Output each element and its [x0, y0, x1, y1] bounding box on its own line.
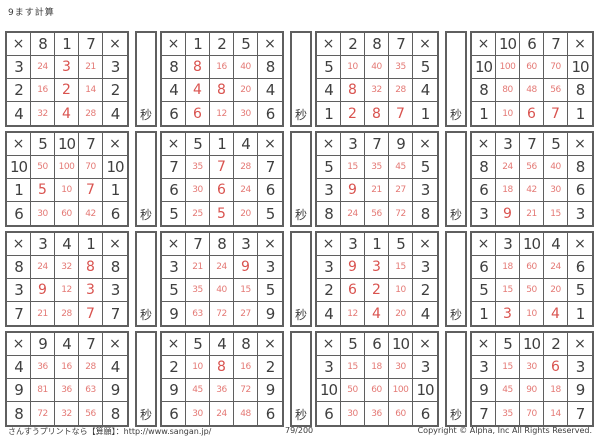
- right-factor-cell: 3: [258, 256, 282, 279]
- timer-box: 秒: [135, 31, 157, 127]
- left-factor-cell: 2: [7, 79, 31, 102]
- right-factor-cell: 3: [568, 356, 592, 379]
- answer-cell: 6: [186, 102, 210, 125]
- top-factor-cell: 10: [520, 233, 544, 256]
- answer-cell: 40: [210, 279, 234, 302]
- right-factor-cell: 2: [413, 279, 437, 302]
- right-factor-cell: 10: [568, 56, 592, 79]
- footer-site-link: さんすうプリントなら【算願】：http://www.sangan.jp/: [8, 426, 211, 437]
- answer-cell: 20: [234, 79, 258, 102]
- calc-table: ×125×88164084482046612306: [160, 31, 284, 127]
- answer-cell: 6: [341, 279, 365, 302]
- answer-cell: 27: [389, 179, 413, 202]
- left-factor-cell: 6: [7, 202, 31, 225]
- answer-cell: 6: [520, 102, 544, 125]
- calc-unit: ×341×82432883912337212877秒: [5, 231, 157, 327]
- left-factor-cell: 9: [162, 302, 186, 325]
- right-factor-cell: 9: [258, 302, 282, 325]
- seconds-label: 秒: [450, 206, 462, 225]
- left-factor-cell: 5: [162, 279, 186, 302]
- answer-cell: 35: [496, 402, 520, 425]
- top-factor-cell: 5: [186, 133, 210, 156]
- multiply-icon: ×: [317, 33, 341, 56]
- top-factor-cell: 7: [79, 333, 103, 356]
- answer-cell: 7: [210, 156, 234, 179]
- right-factor-cell: 6: [258, 402, 282, 425]
- top-factor-cell: 9: [31, 333, 55, 356]
- timer-box: 秒: [135, 231, 157, 327]
- right-factor-cell: 8: [103, 402, 127, 425]
- left-factor-cell: 5: [162, 202, 186, 225]
- top-factor-cell: 2: [544, 333, 568, 356]
- answer-cell: 42: [520, 179, 544, 202]
- answer-cell: 63: [79, 379, 103, 402]
- answer-cell: 36: [210, 379, 234, 402]
- top-factor-cell: 1: [55, 33, 79, 56]
- right-factor-cell: 4: [103, 356, 127, 379]
- left-factor-cell: 3: [317, 256, 341, 279]
- multiply-icon: ×: [413, 233, 437, 256]
- top-factor-cell: 7: [544, 33, 568, 56]
- right-factor-cell: 6: [258, 102, 282, 125]
- footer-page-number: 79/200: [285, 426, 313, 435]
- answer-cell: 72: [389, 202, 413, 225]
- answer-cell: 56: [520, 156, 544, 179]
- right-factor-cell: 9: [258, 379, 282, 402]
- top-factor-cell: 7: [79, 33, 103, 56]
- answer-cell: 45: [496, 379, 520, 402]
- right-factor-cell: 6: [413, 402, 437, 425]
- answer-cell: 10: [520, 302, 544, 325]
- multiply-icon: ×: [103, 133, 127, 156]
- top-factor-cell: 5: [389, 233, 413, 256]
- multiply-icon: ×: [258, 33, 282, 56]
- answer-cell: 5: [31, 179, 55, 202]
- answer-cell: 90: [520, 379, 544, 402]
- left-factor-cell: 4: [317, 302, 341, 325]
- left-factor-cell: 8: [162, 56, 186, 79]
- right-factor-cell: 10: [413, 379, 437, 402]
- multiply-icon: ×: [568, 233, 592, 256]
- answer-cell: 60: [365, 379, 389, 402]
- right-factor-cell: 6: [568, 179, 592, 202]
- right-factor-cell: 7: [103, 302, 127, 325]
- answer-cell: 3: [55, 56, 79, 79]
- seconds-label: 秒: [450, 106, 462, 125]
- top-factor-cell: 5: [496, 333, 520, 356]
- answer-cell: 21: [186, 256, 210, 279]
- answer-cell: 18: [496, 179, 520, 202]
- answer-cell: 63: [186, 302, 210, 325]
- right-factor-cell: 3: [413, 356, 437, 379]
- calc-table: ×315×3931532621024124204: [315, 231, 439, 327]
- answer-cell: 20: [544, 279, 568, 302]
- left-factor-cell: 3: [7, 279, 31, 302]
- answer-cell: 36: [31, 356, 55, 379]
- answer-cell: 10: [496, 102, 520, 125]
- answer-cell: 24: [234, 179, 258, 202]
- answer-cell: 15: [341, 356, 365, 379]
- left-factor-cell: 10: [7, 156, 31, 179]
- calc-unit: ×783×32124935354015596372279秒: [160, 231, 312, 327]
- answer-cell: 10: [186, 356, 210, 379]
- top-factor-cell: 7: [389, 33, 413, 56]
- top-factor-cell: 8: [365, 33, 389, 56]
- answer-cell: 24: [31, 256, 55, 279]
- seconds-label: 秒: [140, 406, 152, 425]
- right-factor-cell: 8: [568, 156, 592, 179]
- top-factor-cell: 4: [544, 233, 568, 256]
- answer-cell: 24: [544, 256, 568, 279]
- calc-table: ×5107×1050100701015107163060426: [5, 131, 129, 227]
- answer-cell: 60: [389, 402, 413, 425]
- answer-cell: 9: [496, 202, 520, 225]
- right-factor-cell: 8: [258, 56, 282, 79]
- calc-unit: ×817×324321321621424324284秒: [5, 31, 157, 127]
- multiply-icon: ×: [413, 133, 437, 156]
- multiply-icon: ×: [317, 333, 341, 356]
- worksheet-grid-area: ×817×324321321621424324284秒×125×88164084…: [5, 31, 600, 427]
- left-factor-cell: 1: [7, 179, 31, 202]
- top-factor-cell: 5: [544, 133, 568, 156]
- calc-unit: ×379×51535455392127382456728秒: [315, 131, 467, 227]
- top-factor-cell: 7: [365, 133, 389, 156]
- calc-unit: ×548×21081629453672963024486秒: [160, 331, 312, 427]
- top-factor-cell: 5: [341, 333, 365, 356]
- multiply-icon: ×: [472, 133, 496, 156]
- top-factor-cell: 2: [341, 33, 365, 56]
- right-factor-cell: 1: [568, 302, 592, 325]
- answer-cell: 50: [341, 379, 365, 402]
- answer-cell: 30: [520, 356, 544, 379]
- answer-cell: 100: [496, 56, 520, 79]
- answer-cell: 8: [79, 256, 103, 279]
- calc-table: ×5610×315183031050601001063036606: [315, 331, 439, 427]
- answer-cell: 3: [365, 256, 389, 279]
- answer-cell: 2: [365, 279, 389, 302]
- answer-cell: 7: [389, 102, 413, 125]
- left-factor-cell: 5: [472, 279, 496, 302]
- multiply-icon: ×: [317, 233, 341, 256]
- answer-cell: 6: [544, 356, 568, 379]
- answer-cell: 3: [79, 279, 103, 302]
- left-factor-cell: 7: [7, 302, 31, 325]
- answer-cell: 60: [520, 256, 544, 279]
- multiply-icon: ×: [472, 33, 496, 56]
- calc-table: ×3104×6186024651550205131041: [470, 231, 594, 327]
- top-factor-cell: 10: [389, 333, 413, 356]
- top-factor-cell: 8: [31, 33, 55, 56]
- seconds-label: 秒: [295, 106, 307, 125]
- top-factor-cell: 1: [79, 233, 103, 256]
- answer-cell: 5: [210, 202, 234, 225]
- calc-unit: ×514×735728763062465255205秒: [160, 131, 312, 227]
- calc-table: ×514×735728763062465255205: [160, 131, 284, 227]
- answer-cell: 15: [389, 256, 413, 279]
- multiply-icon: ×: [162, 233, 186, 256]
- right-factor-cell: 1: [103, 179, 127, 202]
- answer-cell: 16: [31, 79, 55, 102]
- answer-cell: 8: [210, 356, 234, 379]
- right-factor-cell: 6: [258, 179, 282, 202]
- multiply-icon: ×: [472, 333, 496, 356]
- left-factor-cell: 3: [7, 56, 31, 79]
- answer-cell: 45: [186, 379, 210, 402]
- multiply-icon: ×: [103, 333, 127, 356]
- answer-cell: 72: [31, 402, 55, 425]
- left-factor-cell: 9: [162, 379, 186, 402]
- answer-cell: 70: [544, 56, 568, 79]
- answer-cell: 100: [55, 156, 79, 179]
- timer-box: 秒: [135, 131, 157, 227]
- answer-cell: 4: [365, 302, 389, 325]
- seconds-label: 秒: [295, 406, 307, 425]
- multiply-icon: ×: [7, 33, 31, 56]
- multiply-icon: ×: [162, 133, 186, 156]
- left-factor-cell: 3: [317, 179, 341, 202]
- multiply-icon: ×: [568, 33, 592, 56]
- multiply-icon: ×: [162, 333, 186, 356]
- right-factor-cell: 3: [103, 56, 127, 79]
- answer-cell: 20: [389, 302, 413, 325]
- top-factor-cell: 10: [520, 333, 544, 356]
- answer-cell: 9: [31, 279, 55, 302]
- answer-cell: 30: [186, 402, 210, 425]
- answer-cell: 16: [210, 56, 234, 79]
- answer-cell: 8: [210, 79, 234, 102]
- left-factor-cell: 6: [317, 402, 341, 425]
- answer-cell: 28: [79, 356, 103, 379]
- seconds-label: 秒: [450, 306, 462, 325]
- answer-cell: 6: [210, 179, 234, 202]
- answer-cell: 24: [341, 202, 365, 225]
- left-factor-cell: 1: [317, 102, 341, 125]
- answer-cell: 30: [186, 179, 210, 202]
- left-factor-cell: 8: [317, 202, 341, 225]
- calc-table: ×375×82456408618423063921153: [470, 131, 594, 227]
- right-factor-cell: 2: [103, 79, 127, 102]
- answer-cell: 28: [234, 156, 258, 179]
- answer-cell: 36: [55, 379, 79, 402]
- answer-cell: 18: [496, 256, 520, 279]
- top-factor-cell: 10: [55, 133, 79, 156]
- multiply-icon: ×: [317, 133, 341, 156]
- calc-table: ×379×51535455392127382456728: [315, 131, 439, 227]
- answer-cell: 12: [210, 102, 234, 125]
- top-factor-cell: 8: [210, 233, 234, 256]
- answer-cell: 45: [389, 156, 413, 179]
- answer-cell: 48: [234, 402, 258, 425]
- answer-cell: 32: [31, 102, 55, 125]
- multiply-icon: ×: [413, 333, 437, 356]
- top-factor-cell: 1: [186, 33, 210, 56]
- answer-cell: 50: [31, 156, 55, 179]
- timer-box: 秒: [290, 131, 312, 227]
- calc-table: ×817×324321321621424324284: [5, 31, 129, 127]
- answer-cell: 35: [186, 279, 210, 302]
- left-factor-cell: 2: [317, 279, 341, 302]
- answer-cell: 7: [79, 179, 103, 202]
- timer-box: 秒: [290, 331, 312, 427]
- right-factor-cell: 2: [258, 356, 282, 379]
- multiply-icon: ×: [258, 233, 282, 256]
- calc-table: ×783×32124935354015596372279: [160, 231, 284, 327]
- answer-cell: 30: [341, 402, 365, 425]
- answer-cell: 30: [544, 179, 568, 202]
- answer-cell: 50: [520, 279, 544, 302]
- calc-table: ×947×436162849813663987232568: [5, 331, 129, 427]
- answer-cell: 70: [79, 156, 103, 179]
- right-factor-cell: 5: [258, 279, 282, 302]
- top-factor-cell: 6: [520, 33, 544, 56]
- right-factor-cell: 5: [413, 156, 437, 179]
- multiply-icon: ×: [7, 233, 31, 256]
- top-factor-cell: 3: [496, 133, 520, 156]
- answer-cell: 24: [210, 256, 234, 279]
- top-factor-cell: 3: [234, 233, 258, 256]
- right-factor-cell: 8: [568, 79, 592, 102]
- page-footer: さんすうプリントなら【算願】：http://www.sangan.jp/ 79/…: [0, 424, 600, 438]
- right-factor-cell: 1: [413, 102, 437, 125]
- answer-cell: 28: [79, 102, 103, 125]
- calc-unit: ×315×3931532621024124204秒: [315, 231, 467, 327]
- left-factor-cell: 3: [162, 256, 186, 279]
- top-factor-cell: 4: [55, 233, 79, 256]
- answer-cell: 15: [341, 156, 365, 179]
- timer-box: 秒: [135, 331, 157, 427]
- multiply-icon: ×: [568, 333, 592, 356]
- timer-box: 秒: [290, 31, 312, 127]
- left-factor-cell: 1: [472, 102, 496, 125]
- right-factor-cell: 3: [568, 202, 592, 225]
- seconds-label: 秒: [140, 306, 152, 325]
- multiply-icon: ×: [7, 333, 31, 356]
- right-factor-cell: 7: [568, 402, 592, 425]
- right-factor-cell: 3: [103, 279, 127, 302]
- left-factor-cell: 10: [472, 56, 496, 79]
- timer-box: 秒: [445, 331, 467, 427]
- top-factor-cell: 3: [496, 233, 520, 256]
- answer-cell: 4: [55, 102, 79, 125]
- left-factor-cell: 8: [472, 156, 496, 179]
- top-factor-cell: 5: [186, 333, 210, 356]
- right-factor-cell: 7: [258, 156, 282, 179]
- answer-cell: 10: [55, 179, 79, 202]
- answer-cell: 21: [365, 179, 389, 202]
- answer-cell: 21: [520, 202, 544, 225]
- left-factor-cell: 6: [472, 179, 496, 202]
- left-factor-cell: 9: [472, 379, 496, 402]
- calc-table: ×1067×1010060701088048568110671: [470, 31, 594, 127]
- answer-cell: 35: [186, 156, 210, 179]
- left-factor-cell: 8: [472, 79, 496, 102]
- top-factor-cell: 2: [210, 33, 234, 56]
- left-factor-cell: 7: [472, 402, 496, 425]
- left-factor-cell: 3: [472, 202, 496, 225]
- answer-cell: 18: [544, 379, 568, 402]
- page-title: 9ます計算: [8, 5, 55, 18]
- answer-cell: 32: [365, 79, 389, 102]
- right-factor-cell: 5: [568, 279, 592, 302]
- top-factor-cell: 6: [365, 333, 389, 356]
- seconds-label: 秒: [295, 306, 307, 325]
- seconds-label: 秒: [140, 106, 152, 125]
- seconds-label: 秒: [295, 206, 307, 225]
- right-factor-cell: 10: [103, 156, 127, 179]
- right-factor-cell: 8: [103, 256, 127, 279]
- answer-cell: 72: [210, 302, 234, 325]
- answer-cell: 27: [234, 302, 258, 325]
- top-factor-cell: 5: [234, 33, 258, 56]
- answer-cell: 80: [496, 79, 520, 102]
- answer-cell: 100: [389, 379, 413, 402]
- answer-cell: 56: [544, 79, 568, 102]
- answer-cell: 9: [234, 256, 258, 279]
- answer-cell: 25: [186, 202, 210, 225]
- multiply-icon: ×: [162, 33, 186, 56]
- left-factor-cell: 3: [317, 356, 341, 379]
- calc-unit: ×5107×1050100701015107163060426秒: [5, 131, 157, 227]
- answer-cell: 18: [365, 356, 389, 379]
- top-factor-cell: 5: [31, 133, 55, 156]
- multiply-icon: ×: [568, 133, 592, 156]
- top-factor-cell: 3: [31, 233, 55, 256]
- answer-cell: 81: [31, 379, 55, 402]
- answer-cell: 9: [341, 179, 365, 202]
- top-factor-cell: 1: [210, 133, 234, 156]
- multiply-icon: ×: [413, 33, 437, 56]
- right-factor-cell: 5: [413, 56, 437, 79]
- calc-unit: ×375×82456408618423063921153秒: [470, 131, 600, 227]
- answer-cell: 72: [234, 379, 258, 402]
- right-factor-cell: 1: [568, 102, 592, 125]
- answer-cell: 56: [365, 202, 389, 225]
- answer-cell: 2: [55, 79, 79, 102]
- answer-cell: 14: [544, 402, 568, 425]
- answer-cell: 9: [341, 256, 365, 279]
- answer-cell: 15: [496, 279, 520, 302]
- left-factor-cell: 3: [472, 356, 496, 379]
- left-factor-cell: 7: [162, 156, 186, 179]
- top-factor-cell: 4: [234, 133, 258, 156]
- answer-cell: 8: [341, 79, 365, 102]
- right-factor-cell: 4: [413, 79, 437, 102]
- answer-cell: 56: [79, 402, 103, 425]
- left-factor-cell: 6: [162, 102, 186, 125]
- answer-cell: 4: [186, 79, 210, 102]
- answer-cell: 36: [365, 402, 389, 425]
- right-factor-cell: 4: [103, 102, 127, 125]
- multiply-icon: ×: [258, 133, 282, 156]
- top-factor-cell: 1: [365, 233, 389, 256]
- timer-box: 秒: [445, 31, 467, 127]
- left-factor-cell: 4: [317, 79, 341, 102]
- multiply-icon: ×: [103, 233, 127, 256]
- left-factor-cell: 1: [472, 302, 496, 325]
- answer-cell: 28: [55, 302, 79, 325]
- worksheet-page: 9ます計算 ×817×324321321621424324284秒×125×88…: [0, 0, 600, 439]
- answer-cell: 15: [544, 202, 568, 225]
- top-factor-cell: 4: [55, 333, 79, 356]
- left-factor-cell: 4: [162, 79, 186, 102]
- calc-unit: ×3104×6186024651550205131041秒: [470, 231, 600, 327]
- timer-box: 秒: [290, 231, 312, 327]
- calc-unit: ×1067×1010060701088048568110671秒: [470, 31, 600, 127]
- answer-cell: 60: [520, 56, 544, 79]
- top-factor-cell: 7: [186, 233, 210, 256]
- answer-cell: 24: [496, 156, 520, 179]
- calc-unit: ×5102×31530639459018973570147秒: [470, 331, 600, 427]
